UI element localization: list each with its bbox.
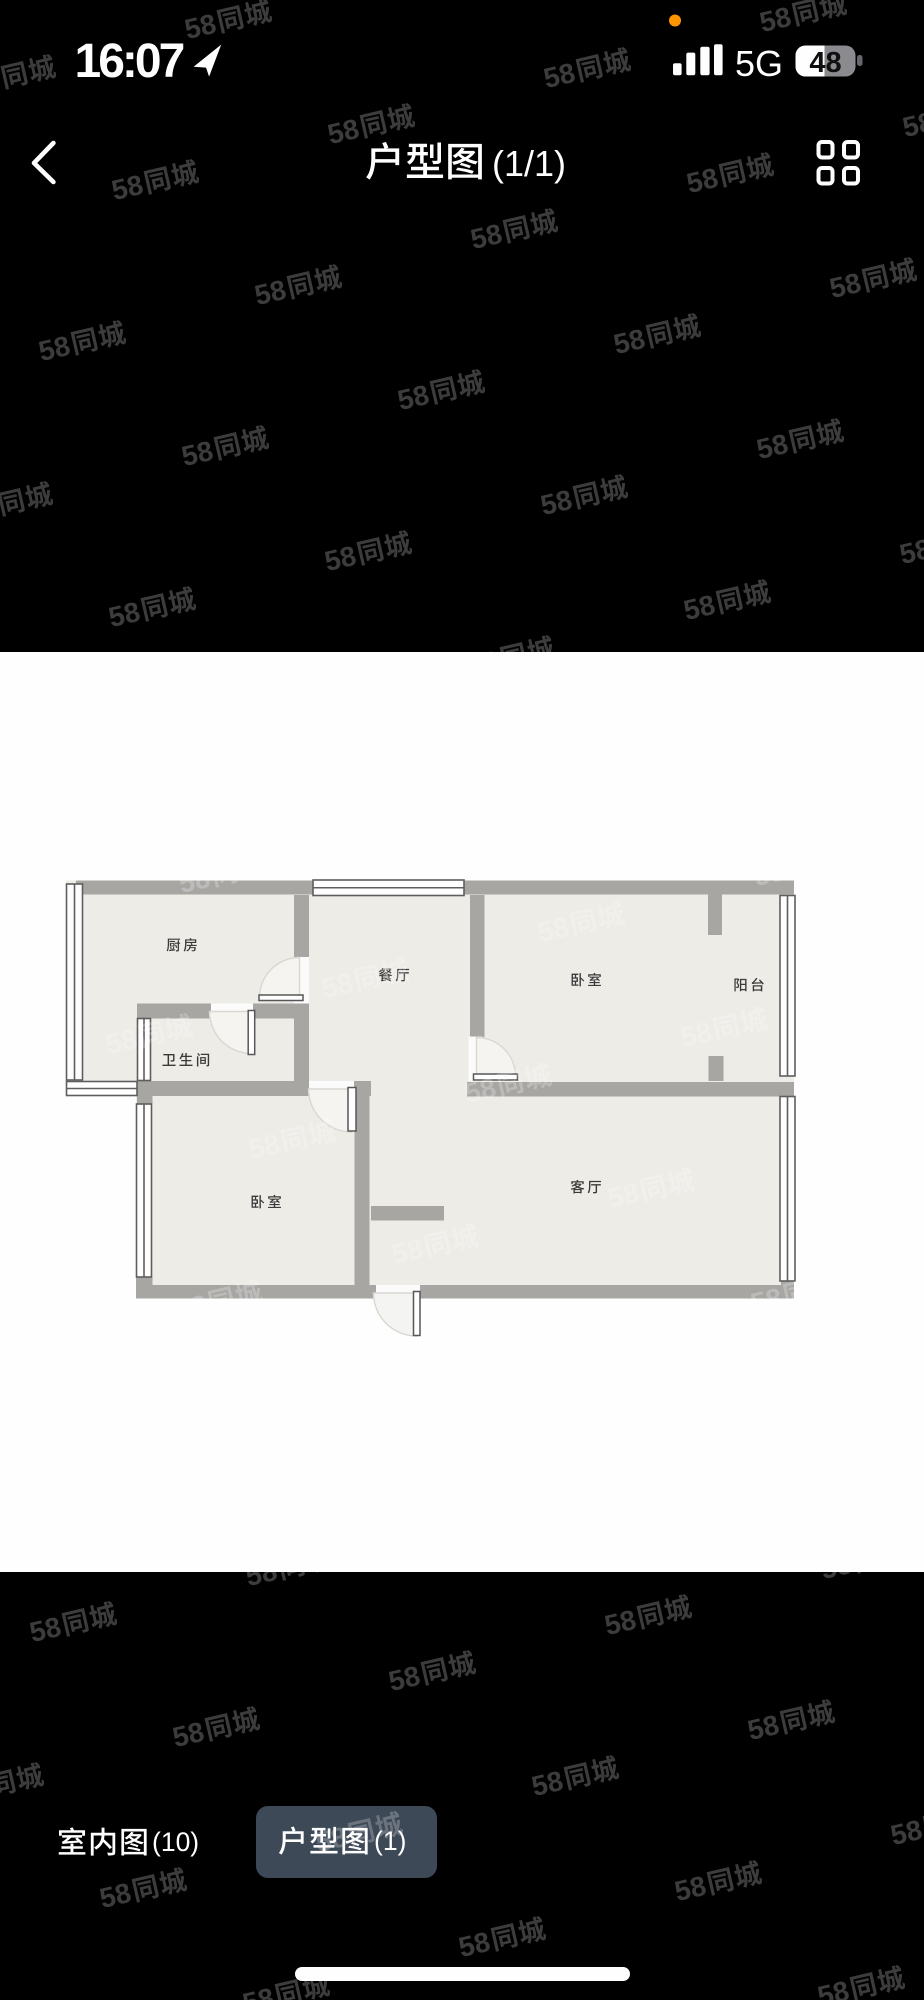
- svg-text:48: 48: [809, 47, 841, 79]
- svg-text:5G: 5G: [735, 43, 783, 84]
- svg-text:16:07: 16:07: [75, 35, 184, 88]
- svg-text:(1/1): (1/1): [492, 143, 566, 184]
- svg-text:(10): (10): [152, 1827, 199, 1857]
